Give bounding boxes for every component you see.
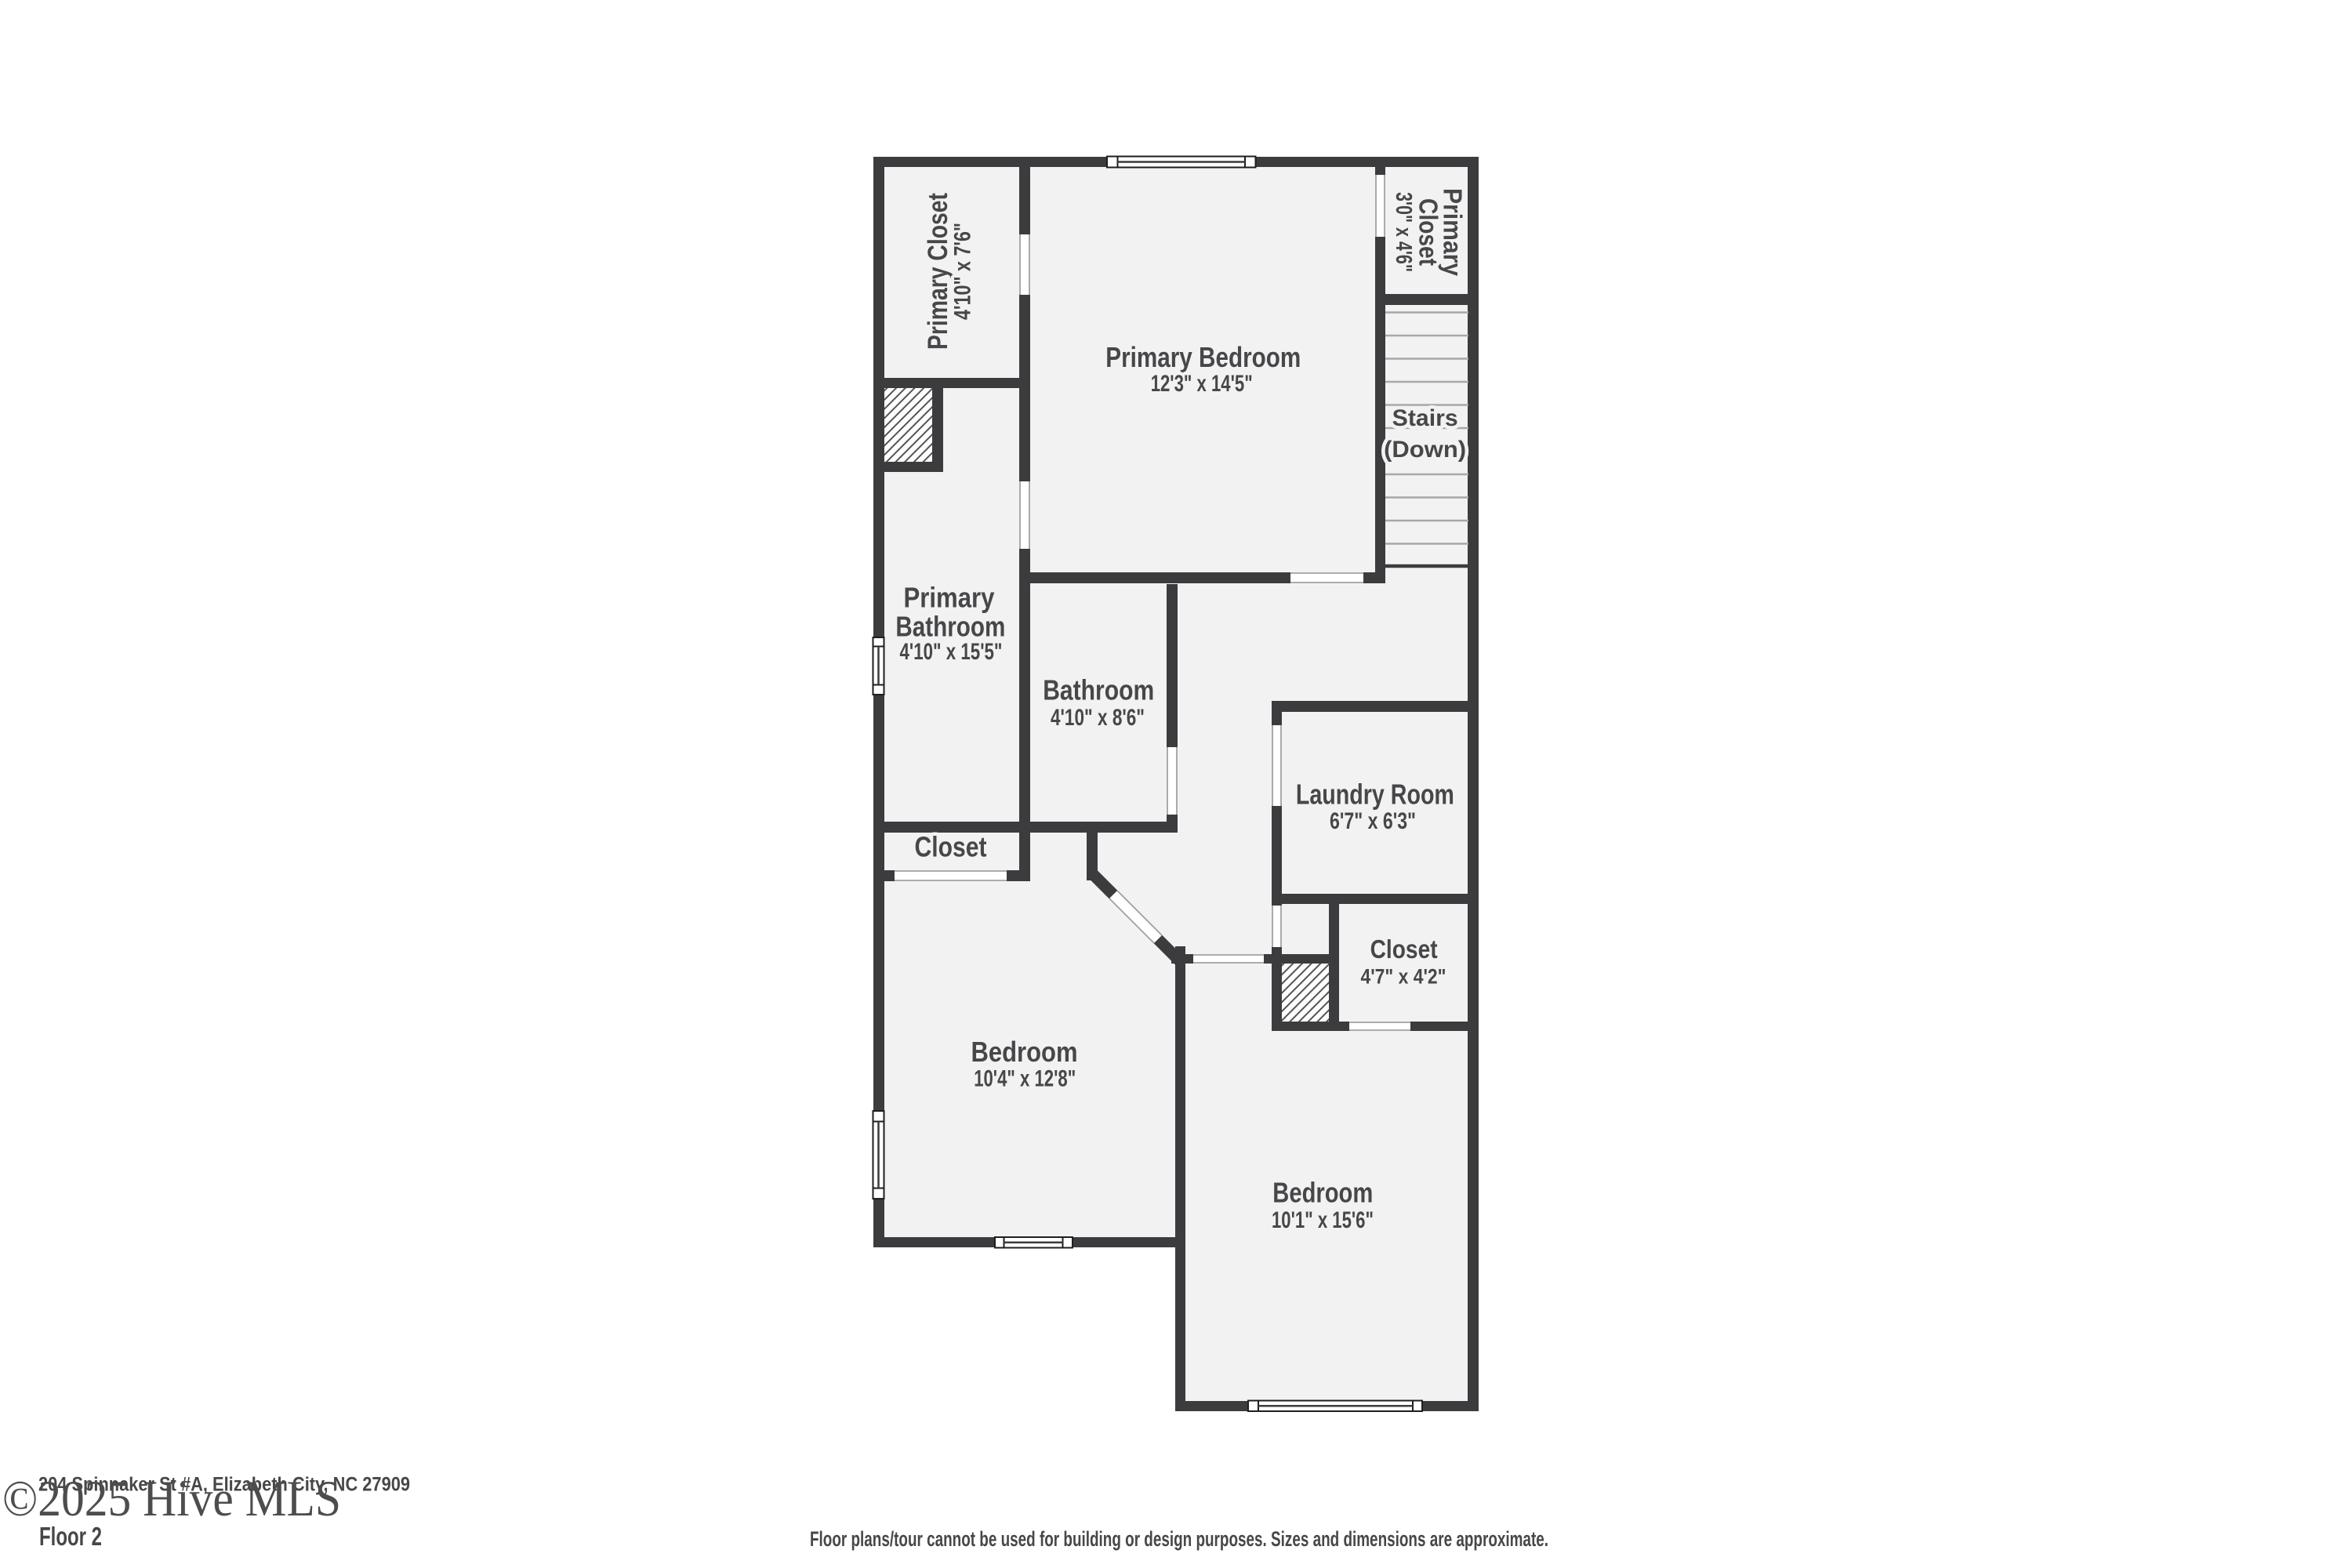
svg-text:10'4" x 12'8": 10'4" x 12'8"	[974, 1065, 1076, 1091]
svg-text:Closet: Closet	[1414, 198, 1443, 266]
svg-text:4'10" x 15'5": 4'10" x 15'5"	[900, 639, 1003, 665]
svg-text:Stairs: Stairs	[1392, 405, 1458, 431]
svg-text:3'0" x 4'6": 3'0" x 4'6"	[1391, 192, 1416, 272]
svg-text:Laundry Room: Laundry Room	[1296, 779, 1454, 811]
svg-text:4'7" x 4'2": 4'7" x 4'2"	[1361, 965, 1446, 989]
svg-text:(Down): (Down)	[1384, 437, 1466, 463]
svg-text:Closet: Closet	[915, 831, 987, 863]
svg-text:12'3" x 14'5": 12'3" x 14'5"	[1151, 371, 1253, 397]
svg-text:Bathroom: Bathroom	[1043, 674, 1154, 706]
svg-text:©2025 Hive MLS: ©2025 Hive MLS	[2, 1471, 341, 1527]
svg-text:4'10" x 7'6": 4'10" x 7'6"	[950, 223, 976, 320]
svg-text:Floor 2: Floor 2	[39, 1522, 102, 1551]
svg-text:Floor plans/tour cannot be use: Floor plans/tour cannot be used for buil…	[810, 1527, 1548, 1551]
svg-text:Primary: Primary	[904, 582, 995, 614]
svg-text:10'1" x 15'6": 10'1" x 15'6"	[1272, 1207, 1374, 1233]
svg-text:4'10" x 8'6": 4'10" x 8'6"	[1051, 705, 1145, 731]
svg-text:Bedroom: Bedroom	[971, 1036, 1078, 1068]
svg-text:Bedroom: Bedroom	[1272, 1177, 1373, 1209]
svg-text:Bathroom: Bathroom	[895, 611, 1005, 643]
svg-text:Closet: Closet	[1370, 935, 1438, 964]
svg-text:6'7" x 6'3": 6'7" x 6'3"	[1330, 808, 1416, 834]
svg-text:Primary Bedroom: Primary Bedroom	[1105, 341, 1301, 373]
svg-text:Primary Closet: Primary Closet	[923, 193, 953, 350]
